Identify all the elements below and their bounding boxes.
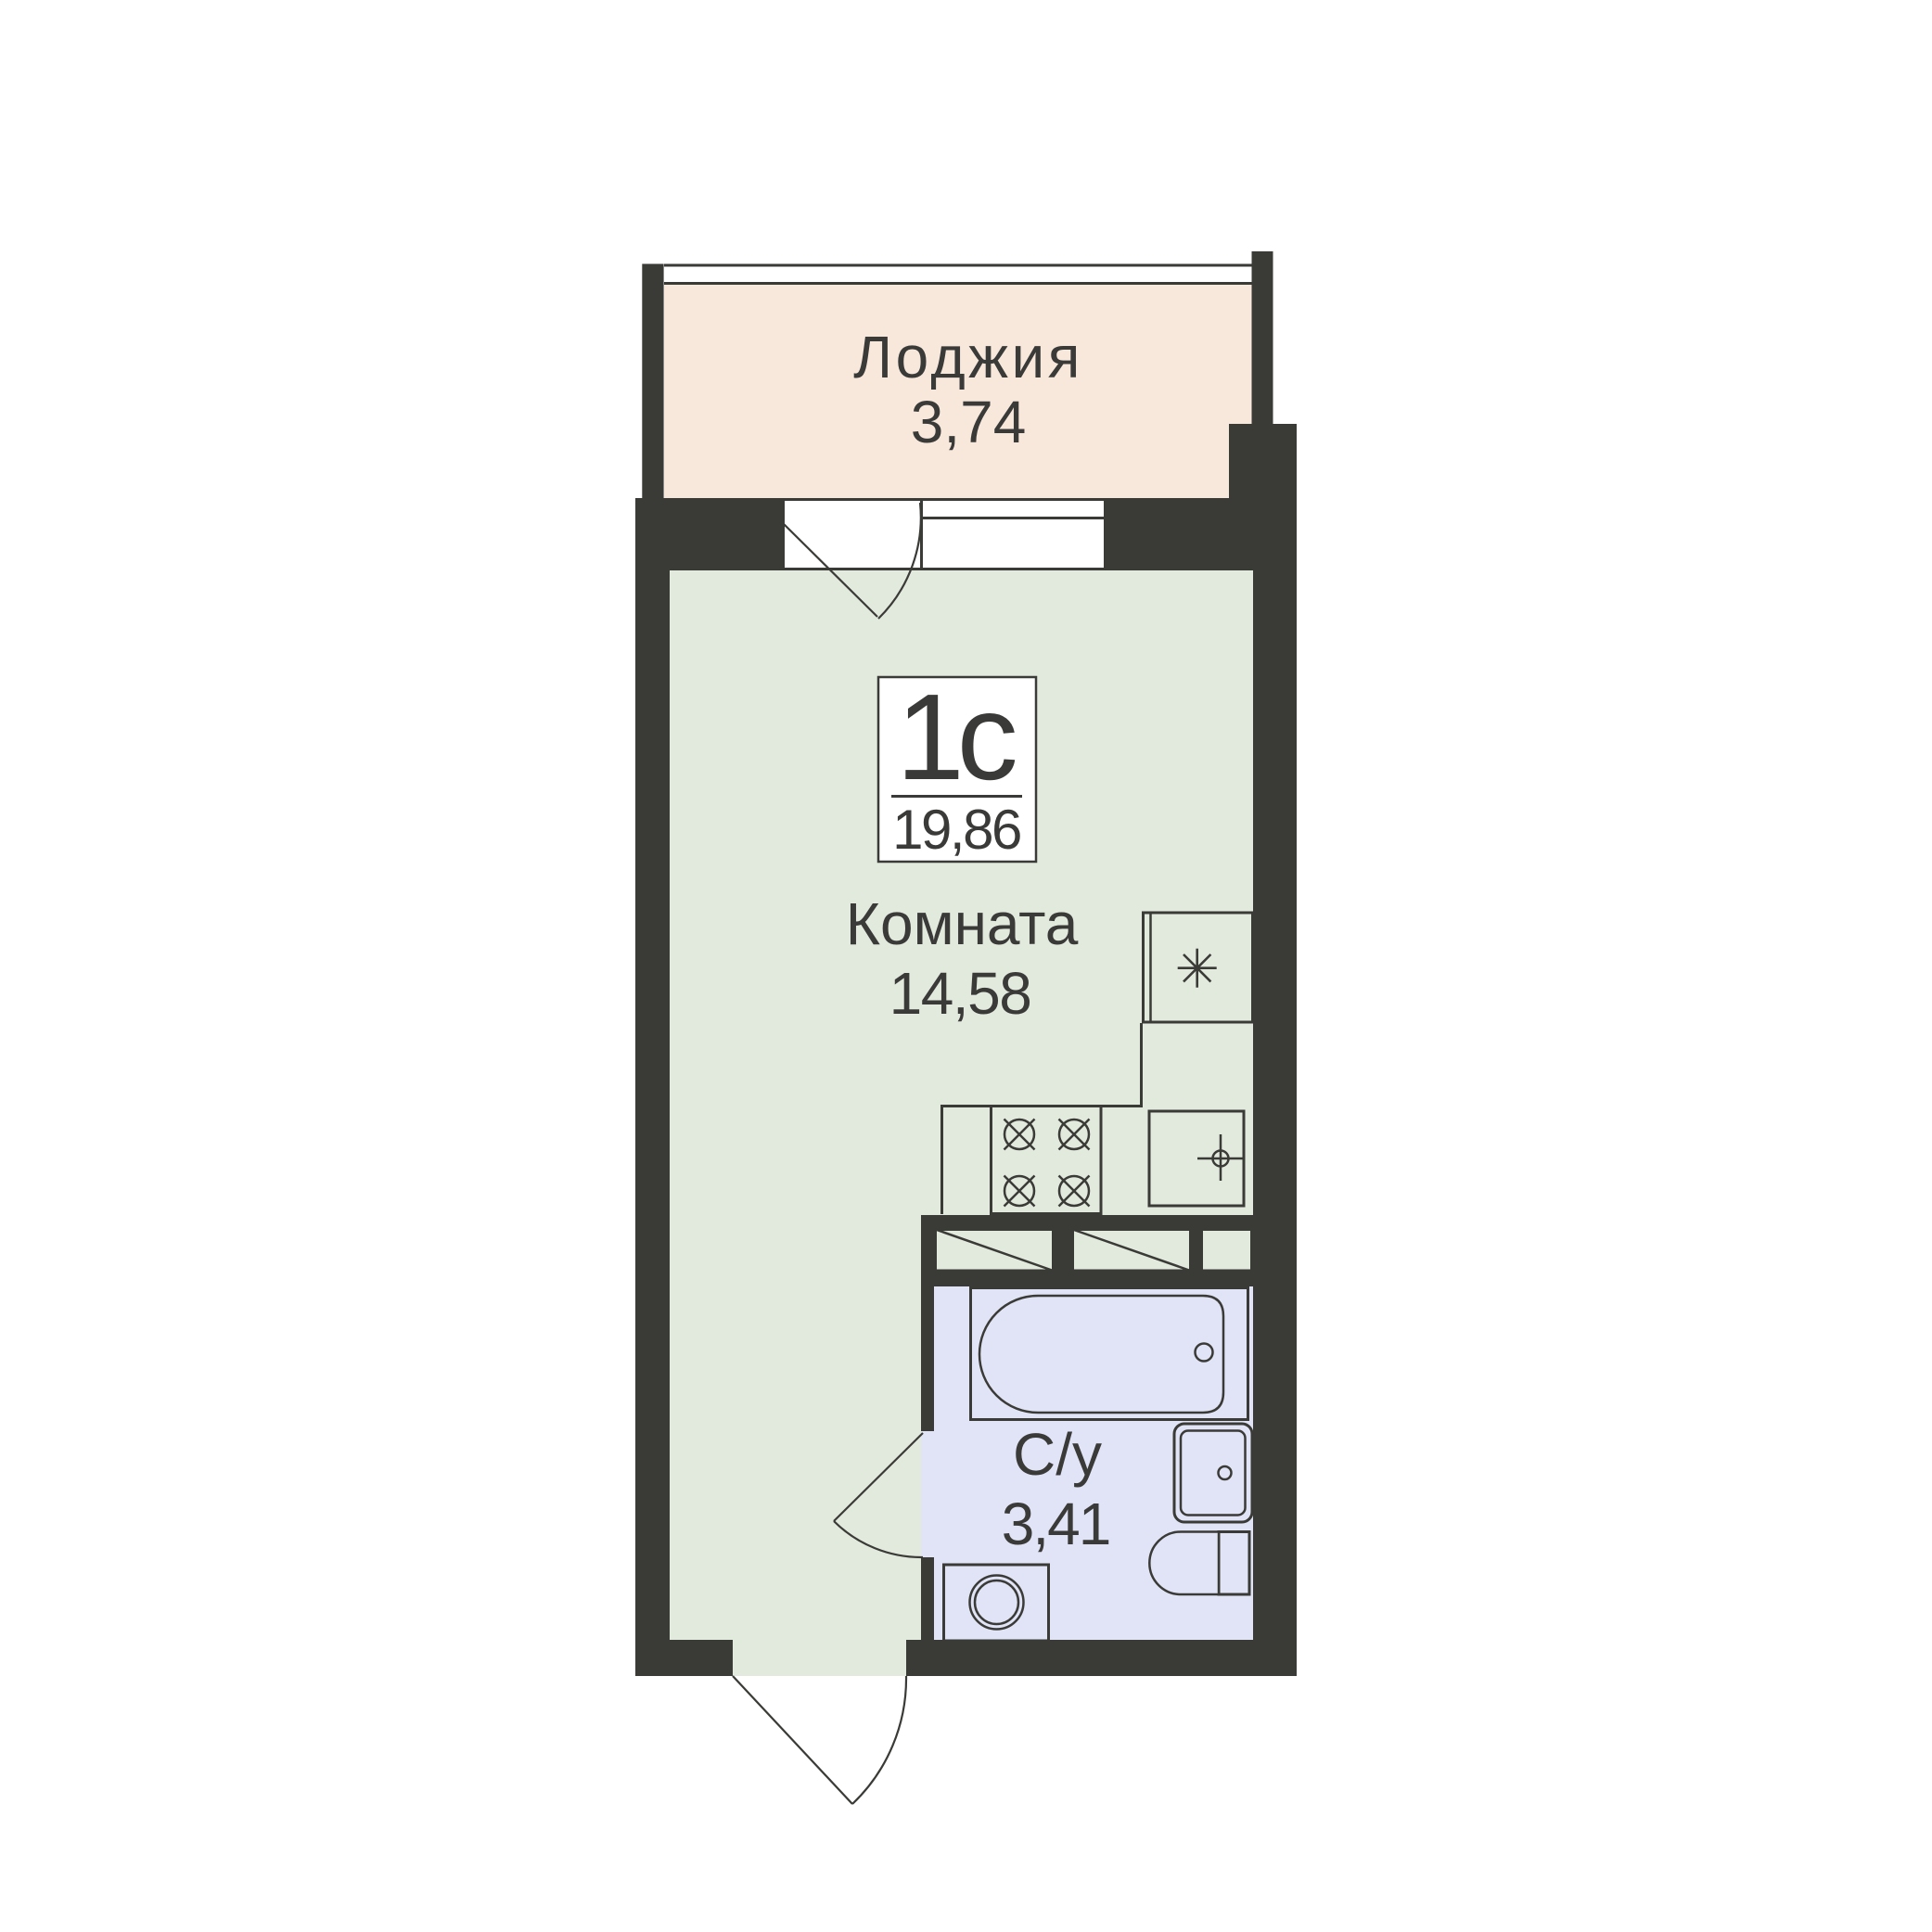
svg-text:3,74: 3,74: [911, 389, 1027, 455]
svg-text:Комната: Комната: [846, 890, 1079, 957]
svg-text:С/у: С/у: [1013, 1421, 1102, 1488]
svg-text:1с: 1с: [896, 669, 1015, 805]
svg-text:3,41: 3,41: [1002, 1491, 1110, 1557]
svg-text:Лоджия: Лоджия: [853, 324, 1083, 390]
svg-text:14,58: 14,58: [889, 960, 1031, 1027]
svg-text:19,86: 19,86: [892, 799, 1020, 861]
